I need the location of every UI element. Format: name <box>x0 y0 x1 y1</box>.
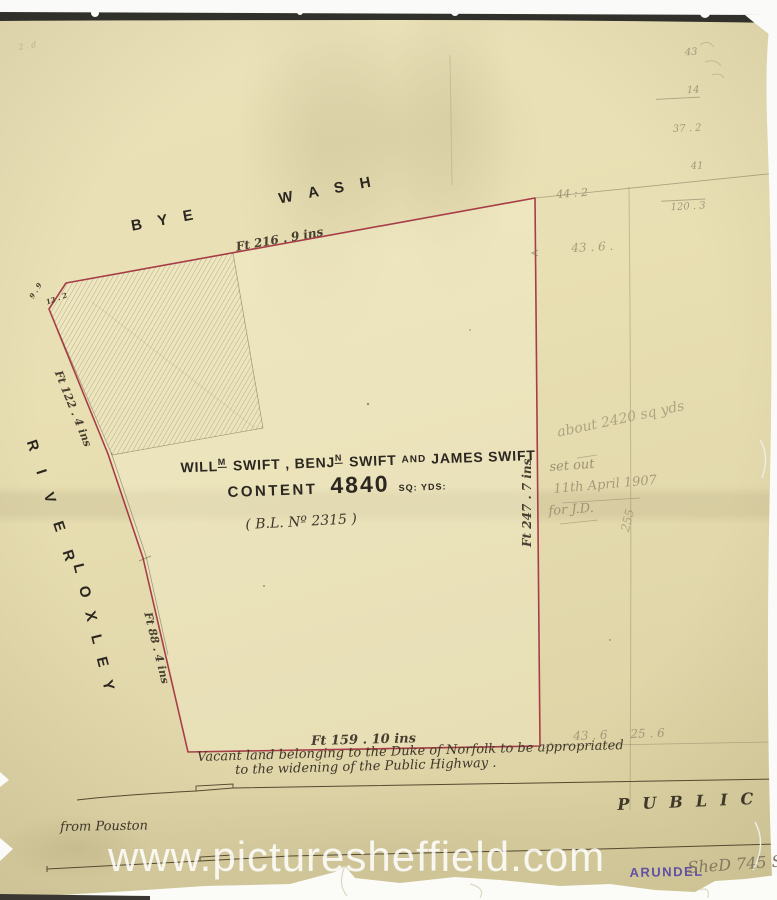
vertical-crease-2 <box>450 55 452 185</box>
content-unit: SQ: YDS: <box>399 482 447 493</box>
scanned-survey-plan: B Y E W A S H R I V E R L O X L E Y Ft 2… <box>0 0 777 900</box>
sum-row: 14 <box>655 84 700 100</box>
deckle-bump <box>700 8 710 18</box>
ink-speck <box>609 639 611 641</box>
deckle-bump <box>297 9 303 15</box>
ink-speck <box>263 585 265 587</box>
owner-2: SWIFT , BENJ <box>228 454 335 474</box>
sum-row: 41 <box>659 160 704 175</box>
pencil-dim-43-6: 43 . 6 . <box>571 240 614 255</box>
left-edge-notches <box>0 772 13 861</box>
owner-4: JAMES SWIFT <box>431 447 536 467</box>
pencil-bottom-dims: 43 . 6 25 . 6 <box>573 727 665 743</box>
pencil-scribbles <box>700 42 724 78</box>
deckle-bump <box>91 9 99 17</box>
picturesheffield-watermark: www.picturesheffield.com <box>108 835 605 879</box>
owner-1: WILL <box>180 458 218 475</box>
pencil-initials: for J.D. <box>548 502 594 519</box>
ink-speck <box>469 329 471 331</box>
ink-speck <box>367 403 369 405</box>
pencil-set-out: set out <box>549 458 595 475</box>
paper-right-edge <box>767 14 777 878</box>
sum-row: 37 . 2 <box>657 123 702 138</box>
owners-and: AND <box>401 453 426 465</box>
deckle-bump <box>451 8 459 16</box>
content-value: 4840 <box>330 471 390 497</box>
owner-3: SWIFT <box>344 451 397 469</box>
owner-2-sup: N <box>335 452 343 463</box>
sum-total: 120 . 3 <box>661 198 706 215</box>
pencil-dim-44-2: 44 : 2 <box>556 187 588 201</box>
sum-row: 43 <box>653 47 698 62</box>
owner-1-sup: M <box>218 456 227 467</box>
content-label: CONTENT <box>227 482 317 501</box>
